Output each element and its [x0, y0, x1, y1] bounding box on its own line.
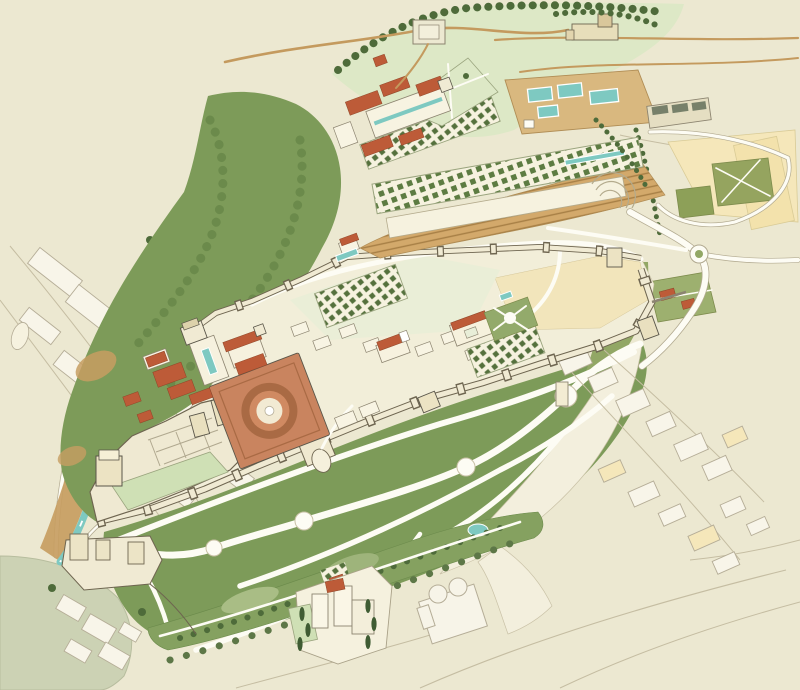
cistern-pools — [505, 70, 658, 134]
city-tower — [556, 382, 568, 406]
alhambra-illustrated-map — [0, 0, 800, 690]
map-canvas — [0, 0, 800, 690]
walled-enclosure — [413, 20, 445, 44]
watch-tower — [96, 450, 122, 486]
roundabout — [690, 245, 708, 263]
picos-tower — [607, 248, 622, 267]
